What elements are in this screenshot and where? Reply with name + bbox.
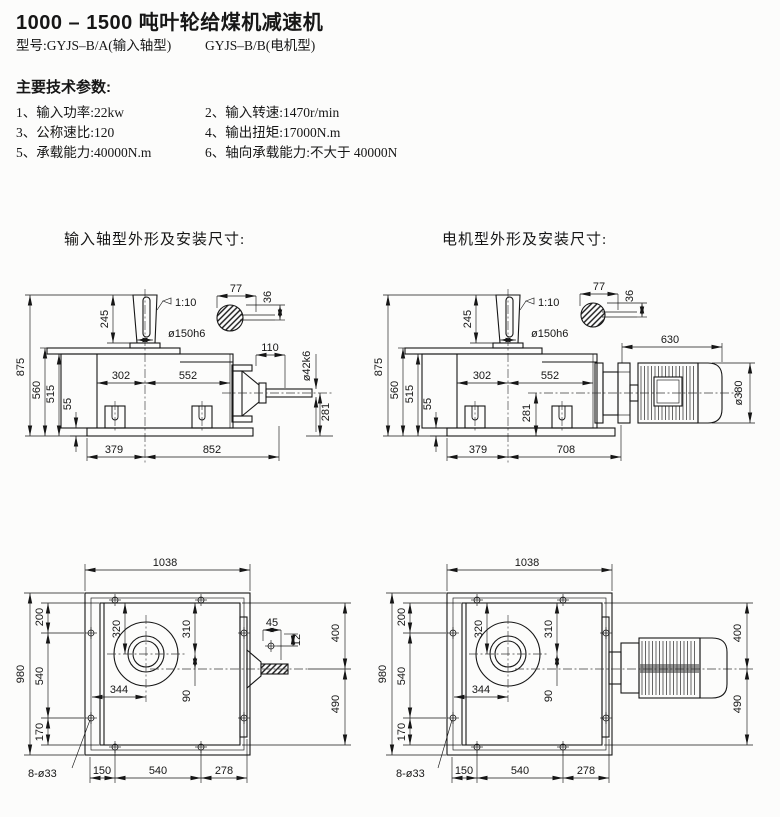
dim-302: 302 [473, 370, 491, 382]
dim-540: 540 [511, 765, 529, 777]
dim-170: 170 [34, 723, 46, 741]
drawing-motor-top-view: 1038 980 200 540 170 320 310 90 344 400 … [380, 545, 780, 817]
dim-55: 55 [422, 398, 434, 410]
dim-630: 630 [661, 334, 679, 346]
housing-outline [447, 593, 742, 755]
dim-344: 344 [472, 684, 490, 696]
dim-278: 278 [577, 765, 595, 777]
dim-dia150: ø150h6 [531, 328, 568, 340]
dim-8-holes: 8-ø33 [28, 768, 57, 780]
terminal-box [654, 377, 682, 406]
dim-379: 379 [469, 444, 487, 456]
drawing-input-front-view: 77 36 875 560 515 55 245 1:10 ø150h6 302… [0, 272, 360, 500]
dim-dia150: ø150h6 [168, 328, 205, 340]
dim-36: 36 [624, 290, 636, 302]
dim-540: 540 [34, 667, 46, 685]
dim-90: 90 [543, 690, 555, 702]
dim-310: 310 [543, 620, 555, 638]
dim-490: 490 [330, 695, 342, 713]
dim-980: 980 [15, 665, 27, 683]
dimension-annotations: 1038 980 200 540 170 320 310 90 344 400 … [15, 557, 351, 783]
model-number-input-type: 型号:GYJS–B/A(输入轴型) [16, 34, 171, 54]
dim-200: 200 [396, 608, 408, 626]
dim-281: 281 [521, 404, 533, 422]
dim-77: 77 [230, 283, 242, 295]
dim-170: 170 [396, 723, 408, 741]
dim-281: 281 [320, 403, 332, 421]
bolt-holes [85, 594, 250, 753]
output-shaft [222, 365, 334, 422]
shaft-key-detail: 77 36 [217, 283, 285, 331]
dim-515: 515 [404, 385, 416, 403]
motor [528, 363, 740, 423]
dim-875: 875 [15, 358, 27, 376]
dim-560: 560 [389, 381, 401, 399]
dim-379: 379 [105, 444, 123, 456]
dim-90: 90 [181, 690, 193, 702]
dim-320: 320 [473, 620, 485, 638]
dim-552: 552 [541, 370, 559, 382]
dim-dia42: ø42k6 [301, 351, 313, 382]
dim-490: 490 [732, 695, 744, 713]
caption-motor-type: 电机型外形及安装尺寸: [442, 228, 607, 249]
dim-310: 310 [181, 620, 193, 638]
dim-110: 110 [261, 342, 279, 354]
dim-708: 708 [557, 444, 575, 456]
shaft-key-detail: 77 36 [580, 281, 647, 327]
dim-560: 560 [31, 381, 43, 399]
spec-load-capacity: 5、承载能力:40000N.m [16, 141, 151, 161]
page-title: 1000 – 1500 吨叶轮给煤机减速机 [16, 6, 323, 35]
dim-302: 302 [112, 370, 130, 382]
dim-36: 36 [262, 291, 274, 303]
dim-150: 150 [93, 765, 111, 777]
bolt-holes [447, 594, 612, 753]
dim-875: 875 [373, 358, 385, 376]
dim-320: 320 [111, 620, 123, 638]
dim-344: 344 [110, 684, 128, 696]
drawing-motor-front-view: 77 36 875 560 515 55 245 1:10 ø150h6 302… [360, 272, 780, 500]
specs-heading: 主要技术参数: [16, 76, 111, 97]
dim-taper: 1:10 [175, 297, 196, 309]
spec-input-speed: 2、输入转速:1470r/min [205, 101, 339, 121]
spec-ratio: 3、公称速比:120 [16, 121, 114, 141]
dim-852: 852 [203, 444, 221, 456]
dim-77: 77 [593, 281, 605, 293]
dim-8-holes: 8-ø33 [396, 768, 425, 780]
dim-200: 200 [34, 608, 46, 626]
datasheet-page: { "page": { "title": "1000 – 1500 吨叶轮给煤机… [0, 0, 780, 817]
drawing-input-top-view: 45 12 1038 980 200 540 170 320 310 90 34… [0, 545, 390, 817]
spec-output-torque: 4、输出扭矩:17000N.m [205, 121, 340, 141]
dim-55: 55 [62, 398, 74, 410]
dim-dia380: ø380 [733, 380, 745, 405]
dim-150: 150 [455, 765, 473, 777]
motor [609, 638, 727, 698]
dim-245: 245 [462, 310, 474, 328]
dim-12: 12 [291, 634, 303, 646]
dim-552: 552 [179, 370, 197, 382]
dim-45: 45 [266, 617, 278, 629]
dim-400: 400 [732, 624, 744, 642]
dim-taper: 1:10 [538, 297, 559, 309]
dim-540: 540 [149, 765, 167, 777]
dim-540: 540 [396, 667, 408, 685]
dim-245: 245 [99, 310, 111, 328]
mounting-hole-detail: 45 12 [263, 617, 303, 660]
dim-515: 515 [45, 385, 57, 403]
dim-1038: 1038 [515, 557, 539, 569]
caption-input-shaft-type: 输入轴型外形及安装尺寸: [64, 228, 245, 249]
spec-input-power: 1、输入功率:22kw [16, 101, 124, 121]
dim-980: 980 [377, 665, 389, 683]
model-number-motor-type: GYJS–B/B(电机型) [205, 34, 315, 54]
dim-1038: 1038 [153, 557, 177, 569]
dim-278: 278 [215, 765, 233, 777]
spec-axial-load: 6、轴向承载能力:不大于 40000N [205, 141, 397, 161]
dim-400: 400 [330, 624, 342, 642]
